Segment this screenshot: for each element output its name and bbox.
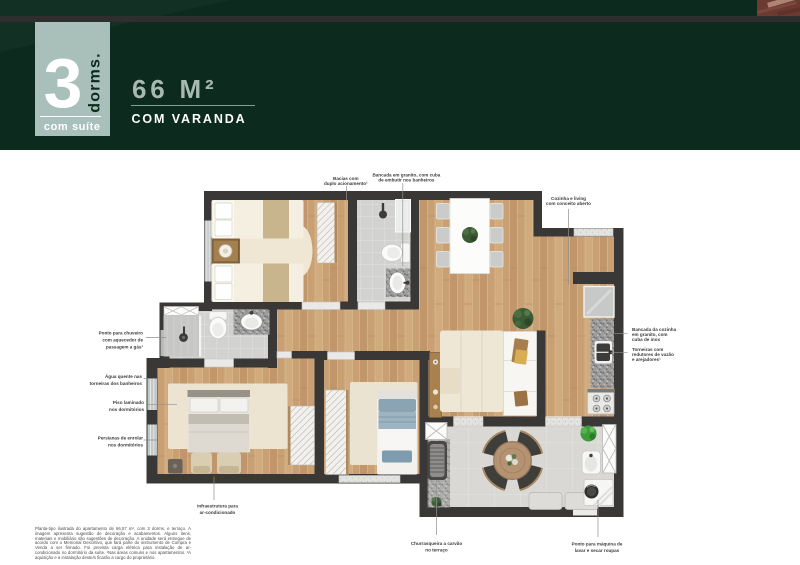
svg-text:torneiras dos banheiros: torneiras dos banheiros [90,381,143,386]
svg-text:Ponto para máquina de: Ponto para máquina de [572,542,623,547]
svg-text:Infraestrutura para: Infraestrutura para [197,504,238,509]
svg-text:com aquecedor de: com aquecedor de [102,338,143,343]
svg-text:lavar e secar roupas: lavar e secar roupas [575,548,620,553]
svg-text:Churrasqueira a carvão: Churrasqueira a carvão [411,541,463,546]
svg-text:Piso laminado: Piso laminado [113,400,144,405]
svg-text:no terraço: no terraço [425,548,448,553]
svg-text:e arejadores¹: e arejadores¹ [632,357,661,362]
svg-text:com conceito aberto: com conceito aberto [546,201,591,206]
svg-text:nos dormitórios: nos dormitórios [109,407,144,412]
svg-text:duplo acionamento¹: duplo acionamento¹ [324,181,368,186]
svg-text:nos dormitórios: nos dormitórios [108,443,143,448]
svg-text:de embutir nos banheiros: de embutir nos banheiros [378,178,435,183]
svg-text:passagem a gás¹: passagem a gás¹ [106,345,143,350]
svg-text:Ponto para chuveiro: Ponto para chuveiro [99,331,144,336]
svg-text:Água quente nas: Água quente nas [105,373,142,379]
svg-text:Persianas de enrolar: Persianas de enrolar [98,436,143,441]
svg-text:ar-condicionado: ar-condicionado [200,510,236,515]
svg-text:cuba de inox: cuba de inox [632,337,661,342]
